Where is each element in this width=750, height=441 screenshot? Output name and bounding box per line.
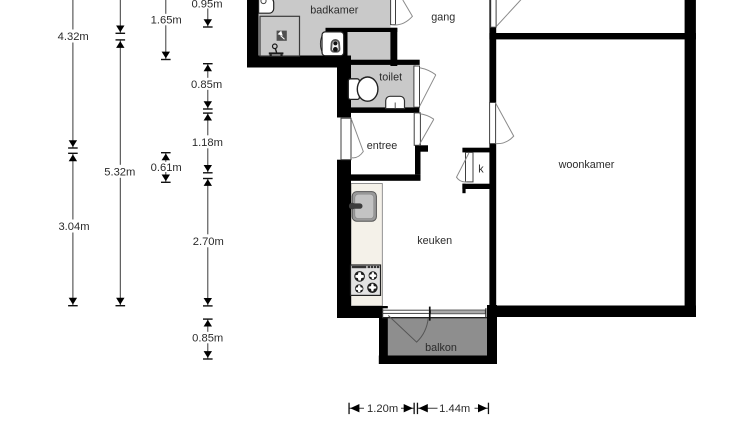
svg-text:0.95m: 0.95m [191, 0, 222, 10]
svg-text:woonkamer: woonkamer [558, 159, 615, 171]
svg-text:1.20m: 1.20m [367, 403, 398, 415]
svg-text:4.32m: 4.32m [58, 31, 89, 43]
svg-text:entree: entree [367, 140, 398, 152]
svg-text:1.44m: 1.44m [439, 403, 470, 415]
svg-text:3.04m: 3.04m [58, 221, 89, 233]
svg-text:gang: gang [431, 11, 455, 23]
svg-text:5.32m: 5.32m [104, 167, 135, 179]
svg-text:1.18m: 1.18m [192, 137, 223, 149]
svg-text:badkamer: badkamer [310, 5, 358, 17]
svg-text:toilet: toilet [379, 71, 402, 83]
svg-text:2.70m: 2.70m [193, 236, 224, 248]
svg-text:k: k [478, 164, 484, 176]
svg-text:0.85m: 0.85m [191, 79, 222, 91]
svg-text:balkon: balkon [425, 342, 457, 354]
svg-text:keuken: keuken [417, 235, 452, 247]
svg-text:0.61m: 0.61m [151, 162, 182, 174]
svg-text:1.65m: 1.65m [151, 15, 182, 27]
svg-text:0.85m: 0.85m [192, 332, 223, 344]
